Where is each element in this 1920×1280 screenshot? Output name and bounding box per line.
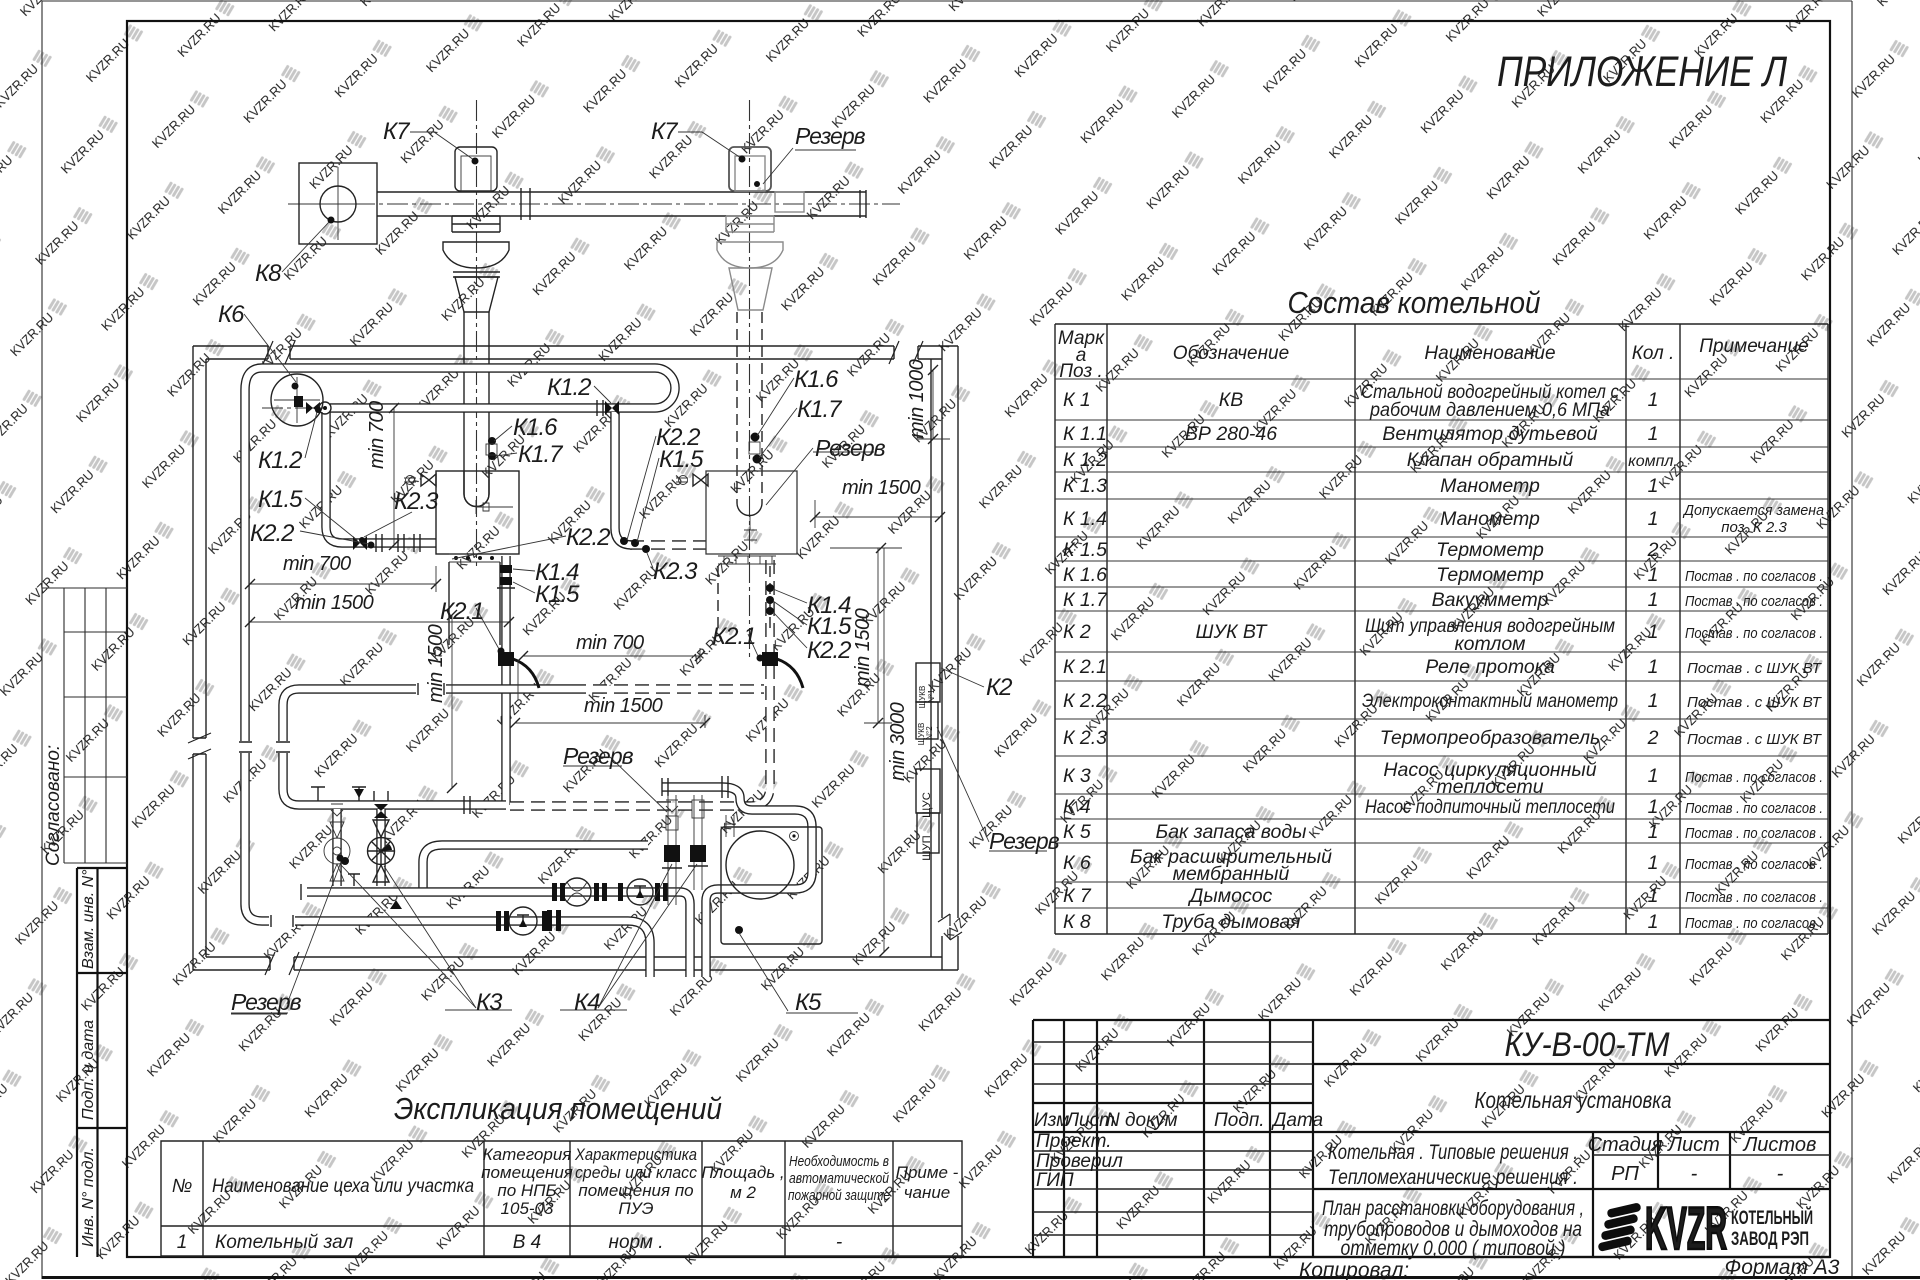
svg-text:Инв. N° подл.: Инв. N° подл. — [80, 1147, 97, 1247]
svg-text:Дата: Дата — [1271, 1110, 1323, 1131]
svg-text:min 1500: min 1500 — [584, 695, 663, 717]
svg-text:К1.6: К1.6 — [513, 414, 558, 441]
svg-text:К2.2: К2.2 — [250, 520, 294, 547]
svg-text:Труба дымовая: Труба дымовая — [1161, 911, 1301, 933]
svg-text:Котельная установка: Котельная установка — [1475, 1087, 1672, 1113]
svg-text:ПРИЛОЖЕНИЕ Л: ПРИЛОЖЕНИЕ Л — [1497, 48, 1787, 96]
svg-text:К 3: К 3 — [1063, 765, 1091, 787]
svg-text:К 1.4: К 1.4 — [1063, 508, 1107, 530]
svg-text:Состав котельной: Состав котельной — [1288, 285, 1541, 320]
svg-text:ШУП: ШУП — [921, 835, 933, 860]
svg-text:Подп.: Подп. — [1214, 1110, 1265, 1131]
svg-text:Термопреобразователь: Термопреобразователь — [1380, 727, 1600, 749]
svg-text:N°2: N°2 — [925, 726, 934, 740]
svg-text:Вентилятор дутьевой: Вентилятор дутьевой — [1382, 423, 1597, 445]
svg-text:Проверил: Проверил — [1036, 1151, 1123, 1172]
svg-text:Взам. инв. N°: Взам. инв. N° — [80, 869, 97, 969]
svg-text:К2.2: К2.2 — [807, 637, 851, 664]
svg-text:min 700: min 700 — [283, 553, 351, 575]
svg-text:Котельный зал: Котельный зал — [215, 1232, 353, 1253]
svg-text:К8: К8 — [255, 260, 282, 287]
svg-text:рабочим давлением 0,6 МПа: рабочим давлением 0,6 МПа — [1369, 399, 1610, 421]
svg-text:К 2.1: К 2.1 — [1063, 656, 1107, 678]
svg-text:1: 1 — [1648, 389, 1659, 411]
svg-text:К1.2: К1.2 — [547, 374, 591, 401]
svg-text:К 8: К 8 — [1063, 911, 1091, 933]
svg-text:Постав . по согласов .: Постав . по согласов . — [1685, 889, 1823, 906]
svg-text:К 2: К 2 — [1063, 621, 1091, 643]
svg-text:К 4: К 4 — [1063, 796, 1091, 818]
svg-text:2: 2 — [1647, 727, 1659, 749]
svg-text:Электроконтактный манометр: Электроконтактный манометр — [1362, 690, 1618, 712]
svg-text:Экспликация помещений: Экспликация помещений — [394, 1091, 722, 1126]
svg-text:м 2: м 2 — [730, 1183, 756, 1202]
svg-text:1: 1 — [1648, 690, 1659, 712]
svg-text:Допускается замена: Допускается замена — [1682, 502, 1824, 519]
svg-text:min 3000: min 3000 — [887, 702, 909, 781]
svg-text:Постав . по согласов .: Постав . по согласов . — [1685, 568, 1823, 585]
svg-text:отметку 0,000 ( типовой ): отметку 0,000 ( типовой ) — [1341, 1237, 1566, 1260]
svg-text:К2.1: К2.1 — [440, 598, 484, 625]
svg-text:Необходимость в: Необходимость в — [789, 1153, 889, 1170]
svg-text:К7: К7 — [651, 118, 679, 145]
svg-text:ЗАВОД РЭП: ЗАВОД РЭП — [1731, 1229, 1809, 1250]
svg-text:min 700: min 700 — [576, 632, 644, 654]
svg-text:ЩУС: ЩУС — [921, 792, 933, 818]
svg-text:Лист: Лист — [1666, 1134, 1720, 1156]
svg-text:Постав . по согласов .: Постав . по согласов . — [1685, 769, 1823, 786]
svg-text:Обозначение: Обозначение — [1173, 343, 1289, 364]
svg-text:Резерв: Резерв — [563, 743, 634, 769]
svg-text:К 1.2: К 1.2 — [1063, 449, 1107, 471]
svg-text:min 700: min 700 — [366, 401, 388, 469]
svg-text:чание: чание — [904, 1183, 951, 1202]
svg-text:Термометр: Термометр — [1436, 539, 1544, 561]
svg-text:К2.2: К2.2 — [566, 524, 610, 551]
svg-text:Копировал:: Копировал: — [1299, 1259, 1409, 1280]
svg-text:-: - — [836, 1232, 842, 1253]
svg-text:N докум: N докум — [1106, 1110, 1178, 1131]
svg-text:min 1000: min 1000 — [906, 359, 928, 438]
svg-text:ВР 280-46: ВР 280-46 — [1185, 423, 1277, 445]
svg-text:К 1.6: К 1.6 — [1063, 564, 1107, 586]
svg-text:теплосети: теплосети — [1436, 776, 1543, 798]
svg-text:норм .: норм . — [609, 1232, 664, 1253]
svg-text:1: 1 — [1648, 508, 1659, 530]
svg-text:Приме -: Приме - — [896, 1163, 959, 1182]
svg-text:min 1500: min 1500 — [425, 624, 447, 703]
svg-text:Резерв: Резерв — [989, 828, 1060, 854]
svg-text:К2: К2 — [986, 674, 1012, 701]
svg-text:Резерв: Резерв — [815, 435, 886, 461]
svg-text:Постав . с ШУК ВТ: Постав . с ШУК ВТ — [1687, 694, 1823, 711]
svg-text:Категория: Категория — [483, 1145, 572, 1164]
svg-text:К1.5: К1.5 — [807, 613, 852, 640]
svg-text:К3: К3 — [476, 989, 503, 1016]
svg-text:1: 1 — [1648, 911, 1659, 933]
svg-text:КОТЕЛЬНЫЙ: КОТЕЛЬНЫЙ — [1731, 1207, 1813, 1229]
svg-text:Манометр: Манометр — [1440, 475, 1540, 497]
svg-text:min 1500: min 1500 — [852, 608, 874, 687]
svg-text:КУ-В-00-ТМ: КУ-В-00-ТМ — [1505, 1026, 1671, 1064]
svg-text:Наименование: Наименование — [1424, 343, 1555, 364]
svg-text:К1.2: К1.2 — [258, 447, 302, 474]
svg-text:План расстановки оборудовани: План расстановки оборудования , — [1322, 1197, 1584, 1220]
svg-text:ПУЭ: ПУЭ — [618, 1199, 653, 1218]
svg-text:помещения по: помещения по — [578, 1181, 693, 1200]
svg-text:Реле протока: Реле протока — [1425, 656, 1555, 678]
svg-text:компл.: компл. — [1628, 453, 1678, 470]
svg-text:2: 2 — [1647, 539, 1659, 561]
svg-text:1: 1 — [177, 1232, 188, 1253]
svg-text:-: - — [1691, 1163, 1698, 1185]
svg-text:К6: К6 — [218, 301, 245, 328]
svg-text:Стадия: Стадия — [1588, 1134, 1663, 1156]
svg-text:1: 1 — [1648, 423, 1659, 445]
svg-text:К1.6: К1.6 — [794, 366, 839, 393]
svg-text:Наименование цеха или участ: Наименование цеха или участка — [212, 1176, 474, 1197]
svg-text:1: 1 — [1648, 796, 1659, 818]
svg-text:К1.7: К1.7 — [518, 441, 564, 468]
svg-text:К 2.2: К 2.2 — [1063, 690, 1107, 712]
svg-text:1: 1 — [1648, 821, 1659, 843]
svg-text:среды или класс: среды или класс — [575, 1163, 697, 1182]
svg-text:поз. К 2.3: поз. К 2.3 — [1721, 519, 1787, 536]
svg-text:К 2.3: К 2.3 — [1063, 727, 1107, 749]
svg-text:Постав . по согласов .: Постав . по согласов . — [1685, 825, 1823, 842]
svg-text:К 1.1: К 1.1 — [1063, 423, 1107, 445]
svg-text:ШУК ВТ: ШУК ВТ — [1196, 621, 1269, 643]
svg-text:-: - — [1777, 1163, 1784, 1185]
svg-text:1: 1 — [1648, 765, 1659, 787]
svg-text:1: 1 — [1648, 852, 1659, 874]
svg-text:N°1: N°1 — [927, 689, 936, 703]
svg-text:Вакуумметр: Вакуумметр — [1432, 589, 1549, 611]
svg-text:KVZR: KVZR — [1645, 1195, 1727, 1262]
svg-text:помещения: помещения — [481, 1163, 573, 1182]
svg-text:1: 1 — [1648, 589, 1659, 611]
svg-text:Формат А3: Формат А3 — [1725, 1256, 1840, 1279]
svg-text:К1.7: К1.7 — [797, 396, 843, 423]
svg-text:Постав . по согласов .: Постав . по согласов . — [1685, 856, 1823, 873]
svg-text:Подп. и дата: Подп. и дата — [80, 1020, 97, 1120]
svg-text:К7: К7 — [383, 118, 411, 145]
svg-text:К 1.3: К 1.3 — [1063, 475, 1107, 497]
svg-text:Котельная . Типовые решения .: Котельная . Типовые решения . — [1328, 1141, 1578, 1164]
svg-text:Тепломеханические решения .: Тепломеханические решения . — [1328, 1166, 1578, 1189]
svg-text:КВ: КВ — [1219, 389, 1244, 411]
svg-text:Резерв: Резерв — [231, 989, 302, 1015]
svg-text:min 1500: min 1500 — [295, 592, 374, 614]
svg-text:Площадь ,: Площадь , — [701, 1163, 784, 1182]
svg-text:1: 1 — [1648, 885, 1659, 907]
svg-text:105-03: 105-03 — [501, 1199, 554, 1218]
svg-text:К 6: К 6 — [1063, 852, 1091, 874]
svg-text:К5: К5 — [795, 989, 822, 1016]
svg-text:К 1.7: К 1.7 — [1063, 589, 1108, 611]
svg-text:Клапан обратный: Клапан обратный — [1407, 449, 1574, 471]
svg-text:min 1500: min 1500 — [842, 477, 921, 499]
svg-text:Характеристика: Характеристика — [574, 1145, 697, 1164]
svg-text:пожарной защите: пожарной защите — [788, 1187, 890, 1204]
svg-text:В 4: В 4 — [513, 1232, 542, 1253]
svg-text:Кол .: Кол . — [1632, 343, 1675, 364]
svg-text:Постав . по согласов .: Постав . по согласов . — [1685, 593, 1823, 610]
svg-text:Листов: Листов — [1742, 1134, 1817, 1156]
svg-text:Постав . с ШУК ВТ: Постав . с ШУК ВТ — [1687, 731, 1823, 748]
svg-text:Резерв: Резерв — [795, 123, 866, 149]
svg-text:К1.5: К1.5 — [258, 486, 303, 513]
svg-text:К 1.5: К 1.5 — [1063, 539, 1107, 561]
svg-text:котлом: котлом — [1454, 633, 1525, 655]
svg-text:К2.3: К2.3 — [653, 558, 698, 585]
svg-text:Бак запаса воды: Бак запаса воды — [1156, 821, 1307, 843]
svg-text:ЩУКВ: ЩУКВ — [918, 686, 927, 709]
svg-text:Поз .: Поз . — [1059, 361, 1103, 382]
svg-text:К2.3: К2.3 — [394, 488, 439, 515]
svg-text:К2.1: К2.1 — [712, 623, 756, 650]
svg-text:ГИП: ГИП — [1036, 1170, 1074, 1191]
svg-text:Согласовано:: Согласовано: — [43, 745, 64, 866]
svg-text:Термометр: Термометр — [1436, 564, 1544, 586]
svg-text:К1.5: К1.5 — [659, 446, 704, 473]
svg-text:К1.5: К1.5 — [535, 581, 580, 608]
svg-text:Примечание: Примечание — [1699, 336, 1808, 357]
svg-text:по НПБ: по НПБ — [497, 1181, 556, 1200]
svg-text:Дымосос: Дымосос — [1188, 885, 1273, 907]
svg-text:Постав . по согласов .: Постав . по согласов . — [1685, 800, 1823, 817]
svg-text:К 1: К 1 — [1063, 389, 1091, 411]
svg-text:Постав . по согласов .: Постав . по согласов . — [1685, 915, 1823, 932]
svg-text:1: 1 — [1648, 656, 1659, 678]
svg-text:К 7: К 7 — [1063, 885, 1092, 907]
svg-text:РП: РП — [1611, 1163, 1639, 1185]
svg-text:мембранный: мембранный — [1173, 863, 1290, 885]
svg-text:Постав . по согласов .: Постав . по согласов . — [1685, 625, 1823, 642]
svg-text:К 5: К 5 — [1063, 821, 1091, 843]
svg-text:Изм: Изм — [1034, 1110, 1069, 1131]
svg-text:1: 1 — [1648, 564, 1659, 586]
svg-text:автоматической: автоматической — [789, 1170, 890, 1187]
svg-text:Манометр: Манометр — [1440, 508, 1540, 530]
svg-text:К4: К4 — [574, 989, 600, 1016]
svg-text:Насос подпиточный теплосети: Насос подпиточный теплосети — [1365, 796, 1615, 818]
svg-text:1: 1 — [1648, 621, 1659, 643]
svg-text:Постав . с ШУК ВТ: Постав . с ШУК ВТ — [1687, 660, 1823, 677]
svg-text:№: № — [172, 1176, 193, 1197]
svg-text:1: 1 — [1648, 475, 1659, 497]
svg-text:Проект.: Проект. — [1036, 1131, 1112, 1152]
